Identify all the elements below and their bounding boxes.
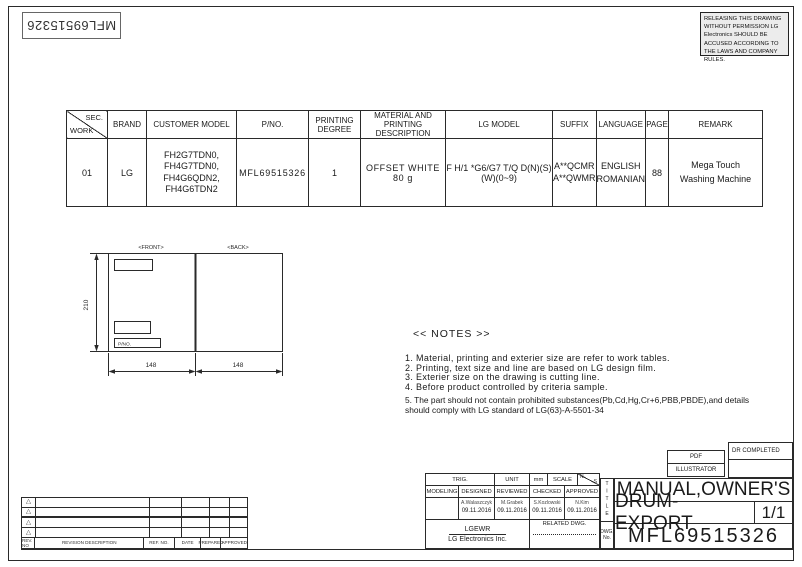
header-suffix: SUFFIX <box>553 111 597 139</box>
revision-desc-cell <box>36 498 150 507</box>
designed-name: A.Walaszczyk <box>461 500 492 507</box>
back-page-label: <BACK> <box>227 245 248 251</box>
cell-brand: LG <box>108 139 147 207</box>
illustrator-label: ILLUSTRATOR <box>668 464 724 476</box>
company-short-name: LGEWR <box>449 526 507 535</box>
header-remark: REMARK <box>669 111 763 139</box>
reviewed-name: M.Grabek <box>501 500 523 507</box>
front-lower-box <box>115 322 151 334</box>
revision-triangle-icon: △ <box>26 509 31 515</box>
checked-date: 09.11.2016 <box>532 507 562 516</box>
work-sec-corner-cell: SEC. WORK <box>67 111 108 139</box>
height-dim-value: 210 <box>83 299 90 310</box>
dwg-no-label-cell: DWG. No. <box>601 522 613 548</box>
col-designed: DESIGNED <box>459 486 495 497</box>
cell-page: 88 <box>646 139 669 207</box>
ref-no-header: REF. NO. <box>144 538 175 548</box>
format-stamp-box: PDF ILLUSTRATOR <box>667 450 725 477</box>
copyright-warning: RELEASING THIS DRAWING WITHOUT PERMISSIO… <box>700 12 789 56</box>
revision-approved-cell <box>230 498 247 507</box>
title-line2: DRUM-EXPORT <box>615 502 755 523</box>
cell-suffix: A**QCMR A**QWMR <box>553 139 597 207</box>
cell-material: OFFSET WHITE 80 g <box>361 139 446 207</box>
checked-signature-cell: S.Kozlowski 09.11.2016 <box>530 498 565 519</box>
arrow-down-icon <box>94 345 98 352</box>
cell-remark: Mega Touch Washing Machine <box>669 139 763 207</box>
front-logo-box <box>115 260 153 271</box>
spec-table: SEC. WORK BRAND CUSTOMER MODEL P/NO. PRI… <box>66 110 763 207</box>
unit-value: mm <box>530 474 548 485</box>
cell-customer-model: FH2G7TDN0, FH4G7TDN0, FH4G6QDN2, FH4G6TD… <box>147 139 237 207</box>
title-strip: TITLE DWG. No. <box>600 478 614 549</box>
revision-prepared-cell <box>210 498 230 507</box>
bottom-rule-line <box>21 549 793 550</box>
notes-section: << NOTES >> 1. Material, printing and ex… <box>405 328 785 416</box>
drawing-sheet: MFL69515326 RELEASING THIS DRAWING WITHO… <box>0 0 802 567</box>
arrow-left2-icon <box>196 369 203 373</box>
header-pno: P/NO. <box>237 111 309 139</box>
reviewed-date: 09.11.2016 <box>497 507 527 516</box>
revision-row: △ <box>22 528 247 538</box>
pno-box-label: P/NO. <box>118 342 131 348</box>
note-5: 5. The part should not contain prohibite… <box>405 396 785 415</box>
copyright-warning-text: RELEASING THIS DRAWING WITHOUT PERMISSIO… <box>704 16 781 63</box>
header-material: MATERIAL AND PRINTING DESCRIPTION <box>361 111 446 139</box>
front-page-label: <FRONT> <box>138 245 163 251</box>
designed-signature-cell: A.Walaszczyk 09.11.2016 <box>459 498 495 519</box>
package-drawing: <FRONT> <BACK> P/NO. 210 148 148 <box>75 235 300 385</box>
designed-date: 09.11.2016 <box>462 507 492 516</box>
revision-triangle-icon: △ <box>26 499 31 505</box>
dr-completed-box: DR COMPLETED <box>728 442 793 478</box>
back-width-dim-value: 148 <box>233 362 244 369</box>
revision-row: △ <box>22 518 247 528</box>
part-number-stamp-text: MFL69515326 <box>27 18 116 33</box>
rev-no-header: REV. NO <box>22 538 35 548</box>
part-number-stamp: MFL69515326 <box>22 12 121 39</box>
header-customer-model: CUSTOMER MODEL <box>147 111 237 139</box>
cell-work: 01 <box>67 139 108 207</box>
revision-table: △ △ △ △ REV. NO REVISION DESCRIPTION REF… <box>21 497 248 549</box>
arrow-right2-icon <box>276 369 283 373</box>
scale-n: N <box>580 474 584 480</box>
prepared-header: PREPARED <box>201 538 221 548</box>
pdf-label: PDF <box>668 451 724 464</box>
col-checked: CHECKED <box>530 486 565 497</box>
title-vertical-label: TITLE <box>601 479 613 522</box>
arrow-up-icon <box>94 254 98 261</box>
arrow-left-icon <box>109 369 116 373</box>
revision-description-header: REVISION DESCRIPTION <box>35 538 144 548</box>
revision-triangle-icon: △ <box>26 520 31 526</box>
header-brand: BRAND <box>108 111 147 139</box>
header-printing-degree: PRINTING DEGREE <box>309 111 361 139</box>
notes-heading: << NOTES >> <box>413 328 785 340</box>
trig-label: TRIG. <box>426 474 495 485</box>
related-dwg-label: RELATED DWG. <box>543 520 587 529</box>
approved-signature-cell: N.Kim 09.11.2016 <box>565 498 599 519</box>
cell-pno: MFL69515326 <box>237 139 309 207</box>
company-cell: LGEWR LG Electronics Inc. <box>426 520 530 548</box>
related-dwg-dotted-line <box>533 529 595 535</box>
reviewed-signature-cell: M.Grabek 09.11.2016 <box>495 498 530 519</box>
related-dwg-cell: RELATED DWG. <box>530 520 599 548</box>
cell-printing-degree: 1 <box>309 139 361 207</box>
dr-completed-label: DR COMPLETED <box>729 443 792 460</box>
unit-label: UNIT <box>495 474 530 485</box>
work-label: WORK <box>70 126 93 135</box>
approved-name: N.Kim <box>575 500 589 507</box>
note-4: 4. Before product controlled by criteria… <box>405 383 785 393</box>
sec-label: SEC. <box>85 113 103 122</box>
arrow-right-icon <box>189 369 196 373</box>
header-page: PAGE <box>646 111 669 139</box>
revision-header-row: REV. NO REVISION DESCRIPTION REF. NO. DA… <box>22 538 247 548</box>
checked-name: S.Kozlowski <box>534 500 561 507</box>
col-reviewed: REVIEWED <box>495 486 530 497</box>
col-modeling: MODELING <box>426 486 459 497</box>
approval-table: TRIG. UNIT mm SCALE N S MODELING DESIGNE… <box>425 473 600 549</box>
header-language: LANGUAGE <box>596 111 646 139</box>
title-block: MANUAL,OWNER'S DRUM-EXPORT 1/1 MFL695153… <box>614 478 793 549</box>
spec-row: 01 LG FH2G7TDN0, FH4G7TDN0, FH4G6QDN2, F… <box>67 139 763 207</box>
revision-date-cell <box>182 498 210 507</box>
cell-language: ENGLISH ROMANIAN <box>596 139 646 207</box>
front-width-dim-value: 148 <box>146 362 157 369</box>
col-approved: APPROVED <box>565 486 599 497</box>
scale-s: S <box>594 479 597 485</box>
scale-value-cell: N S <box>578 474 599 485</box>
date-header: DATE <box>175 538 202 548</box>
revision-row: △ <box>22 508 247 518</box>
sheet-count: 1/1 <box>755 502 792 523</box>
modeling-signature-cell <box>426 498 459 519</box>
approved-date: 09.11.2016 <box>567 507 597 516</box>
company-full-name: LG Electronics Inc. <box>448 535 507 543</box>
header-lg-model: LG MODEL <box>446 111 553 139</box>
dwg-number: MFL69515326 <box>615 524 792 548</box>
scale-label: SCALE <box>548 474 578 485</box>
cell-lg-model: F H/1 *G6/G7 T/Q D(N)(S)(W)(0~9) <box>446 139 553 207</box>
no-label: No. <box>603 535 611 541</box>
revision-triangle-icon: △ <box>26 530 31 536</box>
revision-row: △ <box>22 498 247 508</box>
approved-header: APPROVED <box>221 538 247 548</box>
revision-ref-cell <box>150 498 182 507</box>
